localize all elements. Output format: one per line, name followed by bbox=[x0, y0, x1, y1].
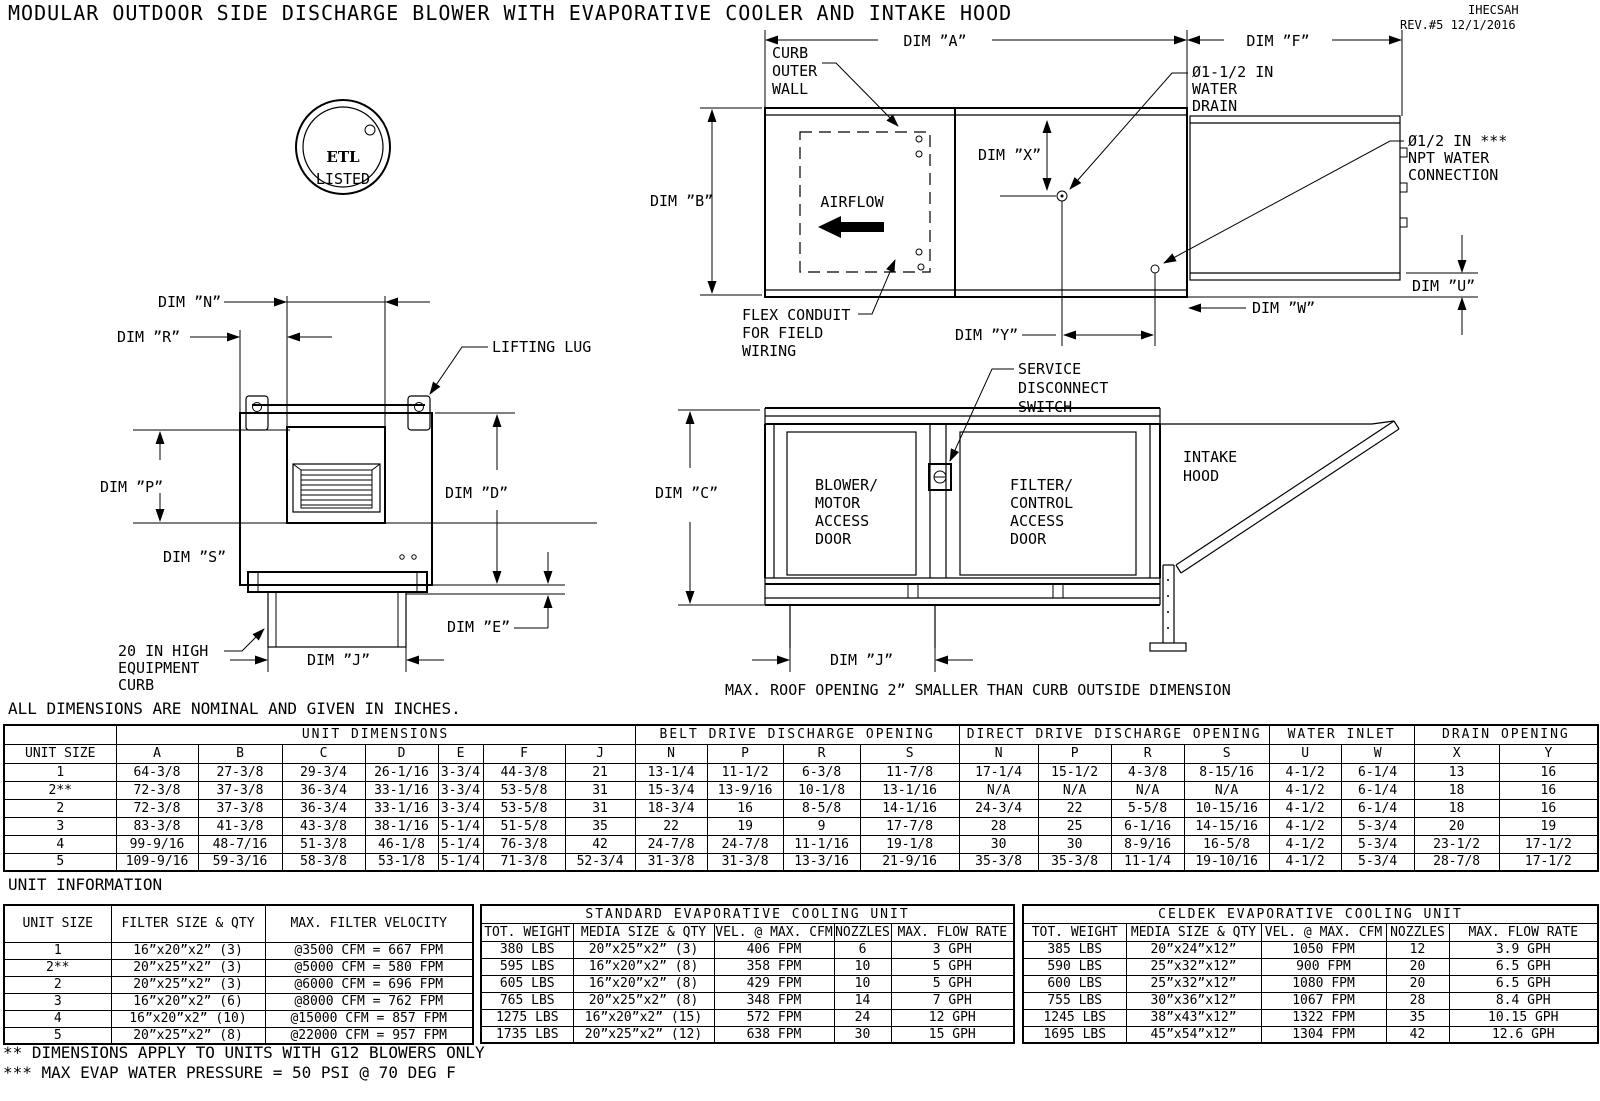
curb-outer-wall-label: OUTER bbox=[772, 62, 818, 80]
table-cell: 20”x25”x2” (8) bbox=[111, 1027, 265, 1044]
table-cell: 5-1/4 bbox=[438, 835, 483, 853]
column-header-row: UNIT SIZE FILTER SIZE & QTY MAX. FILTER … bbox=[4, 905, 473, 942]
table-cell: 7 GPH bbox=[891, 992, 1014, 1009]
table-cell: 590 LBS bbox=[1023, 958, 1126, 975]
dim-y-label: DIM ”Y” bbox=[955, 326, 1018, 344]
table-cell: 35-3/8 bbox=[959, 853, 1038, 871]
table-cell: 4-1/2 bbox=[1269, 853, 1341, 871]
table-cell: 6-1/4 bbox=[1341, 799, 1414, 817]
table-title-row: CELDEK EVAPORATIVE COOLING UNIT bbox=[1023, 905, 1598, 923]
table-row: 416”x20”x2” (10)@15000 CFM = 857 FPM bbox=[4, 1010, 473, 1027]
table-cell: 1275 LBS bbox=[481, 1009, 573, 1026]
flex-conduit-label: FOR FIELD bbox=[742, 324, 823, 342]
column-header-row: UNIT SIZE A B C D E F J N P R S N P R S … bbox=[4, 744, 1598, 763]
column-header: B bbox=[198, 744, 282, 763]
table-cell: 25”x32”x12” bbox=[1126, 958, 1261, 975]
table-cell: 16 bbox=[1499, 763, 1598, 781]
spec-sheet-page: MODULAR OUTDOOR SIDE DISCHARGE BLOWER WI… bbox=[0, 0, 1600, 1101]
filter-door-label: ACCESS bbox=[1010, 512, 1064, 530]
table-row: 316”x20”x2” (6)@8000 CFM = 762 FPM bbox=[4, 993, 473, 1010]
dim-r-label: DIM ”R” bbox=[117, 328, 180, 346]
water-drain-label: WATER bbox=[1192, 80, 1238, 98]
table-cell: 6-3/8 bbox=[783, 763, 860, 781]
table-cell: 2** bbox=[4, 781, 116, 799]
table-cell: 6-1/4 bbox=[1341, 781, 1414, 799]
table-cell: 109-9/16 bbox=[116, 853, 198, 871]
table-row: 1735 LBS20”x25”x2” (12)638 FPM3015 GPH bbox=[481, 1026, 1014, 1043]
table-cell: 44-3/8 bbox=[483, 763, 565, 781]
table-cell: 29-3/4 bbox=[282, 763, 365, 781]
table-cell: 26-1/16 bbox=[365, 763, 438, 781]
curb-outer-wall-label: CURB bbox=[772, 44, 808, 62]
table-cell: 24-7/8 bbox=[635, 835, 707, 853]
column-header: MAX. FLOW RATE bbox=[1449, 923, 1598, 941]
table-cell: 900 FPM bbox=[1261, 958, 1386, 975]
plan-view: DIM ”A” DIM ”F” DIM ”B” bbox=[650, 30, 1507, 360]
table-cell: 13-1/4 bbox=[635, 763, 707, 781]
table-cell: 23-1/2 bbox=[1414, 835, 1499, 853]
column-header: MAX. FLOW RATE bbox=[891, 923, 1014, 941]
column-header: F bbox=[483, 744, 565, 763]
column-header: FILTER SIZE & QTY bbox=[111, 905, 265, 942]
table-cell: 5 GPH bbox=[891, 958, 1014, 975]
etl-listed-text: LISTED bbox=[316, 170, 370, 188]
column-header: S bbox=[1184, 744, 1269, 763]
dim-n-label: DIM ”N” bbox=[158, 293, 221, 311]
table-cell: 20 bbox=[1386, 975, 1449, 992]
column-header: D bbox=[365, 744, 438, 763]
table-cell: 5-1/4 bbox=[438, 817, 483, 835]
table-cell: 4-1/2 bbox=[1269, 799, 1341, 817]
column-header: TOT. WEIGHT bbox=[1023, 923, 1126, 941]
column-header: A bbox=[116, 744, 198, 763]
table-cell: 6.5 GPH bbox=[1449, 975, 1598, 992]
table-cell: 6-1/4 bbox=[1341, 763, 1414, 781]
table-row: 380 LBS20”x25”x2” (3)406 FPM63 GPH bbox=[481, 941, 1014, 958]
airflow-arrow-icon bbox=[818, 216, 884, 238]
table-row: 499-9/1648-7/1651-3/846-1/85-1/476-3/842… bbox=[4, 835, 1598, 853]
table-cell: 15 GPH bbox=[891, 1026, 1014, 1043]
table-cell: 8-15/16 bbox=[1184, 763, 1269, 781]
group-drain-opening: DRAIN OPENING bbox=[1414, 725, 1598, 744]
table-cell: 24 bbox=[834, 1009, 891, 1026]
table-cell: 36-3/4 bbox=[282, 781, 365, 799]
table-cell: 11-1/2 bbox=[707, 763, 783, 781]
table-cell: 21-9/16 bbox=[860, 853, 959, 871]
column-header: C bbox=[282, 744, 365, 763]
table-cell: @3500 CFM = 667 FPM bbox=[265, 942, 473, 959]
table-cell: 20 bbox=[1386, 958, 1449, 975]
table-cell: 72-3/8 bbox=[116, 799, 198, 817]
unit-information-heading: UNIT INFORMATION bbox=[8, 875, 162, 894]
table-cell: @8000 CFM = 762 FPM bbox=[265, 993, 473, 1010]
table-cell: 41-3/8 bbox=[198, 817, 282, 835]
table-cell: 36-3/4 bbox=[282, 799, 365, 817]
group-unit-dimensions: UNIT DIMENSIONS bbox=[116, 725, 635, 744]
table-cell: 31-3/8 bbox=[635, 853, 707, 871]
table-row: 385 LBS20”x24”x12”1050 FPM123.9 GPH bbox=[1023, 941, 1598, 958]
table-row: 595 LBS16”x20”x2” (8)358 FPM105 GPH bbox=[481, 958, 1014, 975]
table-cell: 19-1/8 bbox=[860, 835, 959, 853]
table-cell: 12 bbox=[1386, 941, 1449, 958]
side-view: BLOWER/ MOTOR ACCESS DOOR FILTER/ CONTRO… bbox=[655, 360, 1399, 672]
table-cell: 59-3/16 bbox=[198, 853, 282, 871]
table-cell: 35-3/8 bbox=[1038, 853, 1111, 871]
table-cell: 30 bbox=[834, 1026, 891, 1043]
table-cell: N/A bbox=[1038, 781, 1111, 799]
etl-logo-text: ETL bbox=[326, 148, 360, 166]
water-drain-label: DRAIN bbox=[1192, 97, 1237, 115]
celdek-evap-title: CELDEK EVAPORATIVE COOLING UNIT bbox=[1023, 905, 1598, 923]
group-belt-drive: BELT DRIVE DISCHARGE OPENING bbox=[635, 725, 959, 744]
equipment-curb-label: 20 IN HIGH bbox=[118, 642, 208, 660]
table-cell: 20”x24”x12” bbox=[1126, 941, 1261, 958]
table-cell: 53-5/8 bbox=[483, 781, 565, 799]
flex-conduit-label: FLEX CONDUIT bbox=[742, 306, 850, 324]
table-cell: 765 LBS bbox=[481, 992, 573, 1009]
table-cell: 35 bbox=[565, 817, 635, 835]
table-cell: 10-15/16 bbox=[1184, 799, 1269, 817]
table-cell: 4-1/2 bbox=[1269, 835, 1341, 853]
table-cell: 1245 LBS bbox=[1023, 1009, 1126, 1026]
table-cell: 22 bbox=[1038, 799, 1111, 817]
table-row: 1245 LBS38”x43”x12”1322 FPM3510.15 GPH bbox=[1023, 1009, 1598, 1026]
table-cell: 31 bbox=[565, 781, 635, 799]
table-cell: 600 LBS bbox=[1023, 975, 1126, 992]
column-header: UNIT SIZE bbox=[4, 744, 116, 763]
group-water-inlet: WATER INLET bbox=[1269, 725, 1414, 744]
table-cell: 99-9/16 bbox=[116, 835, 198, 853]
table-cell: 4 bbox=[4, 835, 116, 853]
table-cell: 385 LBS bbox=[1023, 941, 1126, 958]
table-cell: 25”x32”x12” bbox=[1126, 975, 1261, 992]
table-cell: 19 bbox=[707, 817, 783, 835]
table-cell: 13-1/16 bbox=[860, 781, 959, 799]
table-cell: 51-3/8 bbox=[282, 835, 365, 853]
dim-s-label: DIM ”S” bbox=[163, 548, 226, 566]
table-row: 1695 LBS45”x54”x12”1304 FPM4212.6 GPH bbox=[1023, 1026, 1598, 1043]
table-cell: 10 bbox=[834, 958, 891, 975]
table-cell: 348 FPM bbox=[714, 992, 834, 1009]
table-cell: 31-3/8 bbox=[707, 853, 783, 871]
blower-door-label: BLOWER/ bbox=[815, 476, 878, 494]
table-cell: 3 bbox=[4, 993, 111, 1010]
table-cell: 5-3/4 bbox=[1341, 817, 1414, 835]
table-cell: 4-1/2 bbox=[1269, 763, 1341, 781]
column-header: TOT. WEIGHT bbox=[481, 923, 573, 941]
table-cell: 6-1/16 bbox=[1111, 817, 1184, 835]
table-cell: 406 FPM bbox=[714, 941, 834, 958]
table-cell: 8-5/8 bbox=[783, 799, 860, 817]
table-cell: 12.6 GPH bbox=[1449, 1026, 1598, 1043]
airflow-label: AIRFLOW bbox=[820, 193, 884, 211]
table-cell: 19-10/16 bbox=[1184, 853, 1269, 871]
table-cell: 5-3/4 bbox=[1341, 835, 1414, 853]
table-cell: 8-9/16 bbox=[1111, 835, 1184, 853]
table-cell: 38”x43”x12” bbox=[1126, 1009, 1261, 1026]
table-cell: 48-7/16 bbox=[198, 835, 282, 853]
table-cell: 5 bbox=[4, 853, 116, 871]
table-row: 765 LBS20”x25”x2” (8)348 FPM147 GPH bbox=[481, 992, 1014, 1009]
column-header: N bbox=[959, 744, 1038, 763]
table-cell: 18 bbox=[1414, 781, 1499, 799]
dim-j-front-label: DIM ”J” bbox=[307, 651, 370, 669]
table-cell: 64-3/8 bbox=[116, 763, 198, 781]
column-header: P bbox=[707, 744, 783, 763]
table-cell: 1304 FPM bbox=[1261, 1026, 1386, 1043]
column-header: P bbox=[1038, 744, 1111, 763]
table-cell: 5-3/4 bbox=[1341, 853, 1414, 871]
footnote-water-pressure: *** MAX EVAP WATER PRESSURE = 50 PSI @ 7… bbox=[3, 1063, 456, 1082]
water-drain-label: Ø1-1/2 IN bbox=[1192, 63, 1273, 81]
table-cell: 595 LBS bbox=[481, 958, 573, 975]
blower-door-label: MOTOR bbox=[815, 494, 861, 512]
filter-info-table: UNIT SIZE FILTER SIZE & QTY MAX. FILTER … bbox=[3, 904, 474, 1045]
table-cell: 24-7/8 bbox=[707, 835, 783, 853]
table-cell: 4-1/2 bbox=[1269, 817, 1341, 835]
dim-u-label: DIM ”U” bbox=[1412, 277, 1475, 295]
table-row: 116”x20”x2” (3)@3500 CFM = 667 FPM bbox=[4, 942, 473, 959]
table-cell: 13 bbox=[1414, 763, 1499, 781]
table-cell: N/A bbox=[1111, 781, 1184, 799]
table-cell: 51-5/8 bbox=[483, 817, 565, 835]
table-cell: 1695 LBS bbox=[1023, 1026, 1126, 1043]
table-cell: 42 bbox=[1386, 1026, 1449, 1043]
table-cell: 42 bbox=[565, 835, 635, 853]
table-cell: @15000 CFM = 857 FPM bbox=[265, 1010, 473, 1027]
table-row: 600 LBS25”x32”x12”1080 FPM206.5 GPH bbox=[1023, 975, 1598, 992]
table-cell: 25 bbox=[1038, 817, 1111, 835]
table-cell: 19 bbox=[1499, 817, 1598, 835]
column-header: R bbox=[1111, 744, 1184, 763]
table-cell: 16”x20”x2” (10) bbox=[111, 1010, 265, 1027]
table-cell: 31 bbox=[565, 799, 635, 817]
table-cell: 3-3/4 bbox=[438, 799, 483, 817]
table-cell: 14-15/16 bbox=[1184, 817, 1269, 835]
dim-x-label: DIM ”X” bbox=[978, 146, 1041, 164]
table-cell: 11-1/4 bbox=[1111, 853, 1184, 871]
equipment-curb-label: CURB bbox=[118, 676, 154, 694]
intake-hood-label: HOOD bbox=[1183, 467, 1219, 485]
table-cell: 76-3/8 bbox=[483, 835, 565, 853]
column-header-row: TOT. WEIGHT MEDIA SIZE & QTY VEL. @ MAX.… bbox=[481, 923, 1014, 941]
table-cell: 2 bbox=[4, 799, 116, 817]
table-cell: 380 LBS bbox=[481, 941, 573, 958]
table-cell: 11-7/8 bbox=[860, 763, 959, 781]
table-cell: @6000 CFM = 696 FPM bbox=[265, 976, 473, 993]
dim-b-label: DIM ”B” bbox=[650, 192, 713, 210]
table-cell: 46-1/8 bbox=[365, 835, 438, 853]
dim-c-label: DIM ”C” bbox=[655, 484, 718, 502]
table-cell: 17-7/8 bbox=[860, 817, 959, 835]
table-cell: 5-1/4 bbox=[438, 853, 483, 871]
table-cell: 20”x25”x2” (3) bbox=[111, 976, 265, 993]
column-header: R bbox=[783, 744, 860, 763]
table-cell: 28 bbox=[1386, 992, 1449, 1009]
front-view: DIM ”N” DIM ”R” LIFTING LUG DIM ”P” DIM … bbox=[100, 293, 597, 694]
dim-p-label: DIM ”P” bbox=[100, 478, 163, 496]
table-cell: 43-3/8 bbox=[282, 817, 365, 835]
dim-f-label: DIM ”F” bbox=[1246, 32, 1309, 50]
table-cell: 4-3/8 bbox=[1111, 763, 1184, 781]
column-header: VEL. @ MAX. CFM bbox=[1261, 923, 1386, 941]
table-cell: 9 bbox=[783, 817, 860, 835]
table-cell: 1322 FPM bbox=[1261, 1009, 1386, 1026]
table-cell: 2** bbox=[4, 959, 111, 976]
table-cell: 13-3/16 bbox=[783, 853, 860, 871]
group-header-row: UNIT DIMENSIONS BELT DRIVE DISCHARGE OPE… bbox=[4, 725, 1598, 744]
table-row: 2**72-3/837-3/836-3/433-1/163-3/453-5/83… bbox=[4, 781, 1598, 799]
table-cell: 16 bbox=[1499, 799, 1598, 817]
table-cell: 20”x25”x2” (3) bbox=[111, 959, 265, 976]
column-header: UNIT SIZE bbox=[4, 905, 111, 942]
table-cell: 358 FPM bbox=[714, 958, 834, 975]
column-header-row: TOT. WEIGHT MEDIA SIZE & QTY VEL. @ MAX.… bbox=[1023, 923, 1598, 941]
table-row: 383-3/841-3/843-3/838-1/165-1/451-5/8352… bbox=[4, 817, 1598, 835]
table-cell: N/A bbox=[959, 781, 1038, 799]
table-cell: 15-1/2 bbox=[1038, 763, 1111, 781]
dim-w-label: DIM ”W” bbox=[1252, 299, 1315, 317]
blower-door-label: ACCESS bbox=[815, 512, 869, 530]
column-header: E bbox=[438, 744, 483, 763]
table-cell: 4 bbox=[4, 1010, 111, 1027]
table-cell: 572 FPM bbox=[714, 1009, 834, 1026]
table-cell: 1050 FPM bbox=[1261, 941, 1386, 958]
table-cell: 8.4 GPH bbox=[1449, 992, 1598, 1009]
table-cell: 5 GPH bbox=[891, 975, 1014, 992]
table-cell: 3-3/4 bbox=[438, 763, 483, 781]
table-cell: 2 bbox=[4, 976, 111, 993]
blower-door-label: DOOR bbox=[815, 530, 852, 548]
table-row: 1275 LBS16”x20”x2” (15)572 FPM2412 GPH bbox=[481, 1009, 1014, 1026]
table-cell: 1 bbox=[4, 763, 116, 781]
corner-cell bbox=[4, 725, 116, 744]
dim-j-side-label: DIM ”J” bbox=[830, 651, 893, 669]
etl-listed-logo: ETL LISTED bbox=[296, 100, 390, 194]
filter-door-label: FILTER/ bbox=[1010, 476, 1073, 494]
table-cell: 16”x20”x2” (15) bbox=[573, 1009, 714, 1026]
column-header: NOZZLES bbox=[834, 923, 891, 941]
table-cell: 33-1/16 bbox=[365, 781, 438, 799]
table-cell: 6 bbox=[834, 941, 891, 958]
table-cell: 5-5/8 bbox=[1111, 799, 1184, 817]
table-cell: 52-3/4 bbox=[565, 853, 635, 871]
table-cell: 30 bbox=[1038, 835, 1111, 853]
filter-door-label: CONTROL bbox=[1010, 494, 1073, 512]
table-row: 164-3/827-3/829-3/426-1/163-3/444-3/8211… bbox=[4, 763, 1598, 781]
table-cell: 17-1/4 bbox=[959, 763, 1038, 781]
table-cell: 45”x54”x12” bbox=[1126, 1026, 1261, 1043]
filter-door-label: DOOR bbox=[1010, 530, 1047, 548]
column-header: X bbox=[1414, 744, 1499, 763]
column-header: Y bbox=[1499, 744, 1598, 763]
table-cell: N/A bbox=[1184, 781, 1269, 799]
standard-evap-title: STANDARD EVAPORATIVE COOLING UNIT bbox=[481, 905, 1014, 923]
table-cell: 20”x25”x2” (8) bbox=[573, 992, 714, 1009]
table-cell: 20”x25”x2” (3) bbox=[573, 941, 714, 958]
service-switch-label: SERVICE bbox=[1018, 360, 1081, 378]
table-cell: 11-1/16 bbox=[783, 835, 860, 853]
dim-e-label: DIM ”E” bbox=[447, 618, 510, 636]
table-cell: 20”x25”x2” (12) bbox=[573, 1026, 714, 1043]
service-switch-label: DISCONNECT bbox=[1018, 379, 1108, 397]
dim-d-label: DIM ”D” bbox=[445, 484, 508, 502]
table-cell: 30”x36”x12” bbox=[1126, 992, 1261, 1009]
table-cell: 5 bbox=[4, 1027, 111, 1044]
table-cell: 638 FPM bbox=[714, 1026, 834, 1043]
table-cell: 1067 FPM bbox=[1261, 992, 1386, 1009]
table-cell: 21 bbox=[565, 763, 635, 781]
table-cell: 37-3/8 bbox=[198, 781, 282, 799]
npt-water-label: NPT WATER bbox=[1408, 149, 1490, 167]
table-cell: 38-1/16 bbox=[365, 817, 438, 835]
column-header: S bbox=[860, 744, 959, 763]
table-cell: @5000 CFM = 580 FPM bbox=[265, 959, 473, 976]
column-header: J bbox=[565, 744, 635, 763]
table-row: 755 LBS30”x36”x12”1067 FPM288.4 GPH bbox=[1023, 992, 1598, 1009]
table-cell: 13-9/16 bbox=[707, 781, 783, 799]
dimensions-table: UNIT DIMENSIONS BELT DRIVE DISCHARGE OPE… bbox=[3, 724, 1599, 872]
table-cell: 30 bbox=[959, 835, 1038, 853]
column-header: MAX. FILTER VELOCITY bbox=[265, 905, 473, 942]
table-row: 2**20”x25”x2” (3)@5000 CFM = 580 FPM bbox=[4, 959, 473, 976]
column-header: MEDIA SIZE & QTY bbox=[573, 923, 714, 941]
table-cell: 71-3/8 bbox=[483, 853, 565, 871]
table-cell: 18-3/4 bbox=[635, 799, 707, 817]
table-cell: 429 FPM bbox=[714, 975, 834, 992]
dimensions-note: ALL DIMENSIONS ARE NOMINAL AND GIVEN IN … bbox=[8, 699, 461, 718]
table-cell: 16”x20”x2” (3) bbox=[111, 942, 265, 959]
table-cell: 10 bbox=[834, 975, 891, 992]
table-cell: 17-1/2 bbox=[1499, 853, 1598, 871]
equipment-curb-label: EQUIPMENT bbox=[118, 659, 199, 677]
standard-evap-table: STANDARD EVAPORATIVE COOLING UNIT TOT. W… bbox=[480, 904, 1015, 1044]
table-cell: 83-3/8 bbox=[116, 817, 198, 835]
table-cell: 16-5/8 bbox=[1184, 835, 1269, 853]
column-header: N bbox=[635, 744, 707, 763]
table-cell: 53-5/8 bbox=[483, 799, 565, 817]
table-cell: 14-1/16 bbox=[860, 799, 959, 817]
table-cell: 16”x20”x2” (6) bbox=[111, 993, 265, 1010]
table-cell: 17-1/2 bbox=[1499, 835, 1598, 853]
table-cell: 14 bbox=[834, 992, 891, 1009]
table-cell: 22 bbox=[635, 817, 707, 835]
flex-conduit-label: WIRING bbox=[742, 342, 796, 360]
lifting-lug-label: LIFTING LUG bbox=[492, 338, 591, 356]
footnote-g12: ** DIMENSIONS APPLY TO UNITS WITH G12 BL… bbox=[3, 1043, 485, 1062]
table-cell: 1 bbox=[4, 942, 111, 959]
table-row: 605 LBS16”x20”x2” (8)429 FPM105 GPH bbox=[481, 975, 1014, 992]
table-cell: 12 GPH bbox=[891, 1009, 1014, 1026]
table-cell: 16”x20”x2” (8) bbox=[573, 975, 714, 992]
table-cell: 6.5 GPH bbox=[1449, 958, 1598, 975]
table-cell: 15-3/4 bbox=[635, 781, 707, 799]
table-row: 590 LBS25”x32”x12”900 FPM206.5 GPH bbox=[1023, 958, 1598, 975]
npt-water-label: CONNECTION bbox=[1408, 166, 1498, 184]
curb-outer-wall-label: WALL bbox=[772, 80, 808, 98]
table-cell: 3 bbox=[4, 817, 116, 835]
roof-opening-note: MAX. ROOF OPENING 2” SMALLER THAN CURB O… bbox=[725, 681, 1231, 699]
table-cell: 605 LBS bbox=[481, 975, 573, 992]
technical-drawing: ETL LISTED DIM ”A” DIM ”F” bbox=[0, 0, 1600, 700]
dim-a-label: DIM ”A” bbox=[903, 32, 966, 50]
column-header: W bbox=[1341, 744, 1414, 763]
table-cell: 35 bbox=[1386, 1009, 1449, 1026]
table-cell: 28-7/8 bbox=[1414, 853, 1499, 871]
table-row: 520”x25”x2” (8)@22000 CFM = 957 FPM bbox=[4, 1027, 473, 1044]
table-cell: 4-1/2 bbox=[1269, 781, 1341, 799]
column-header: NOZZLES bbox=[1386, 923, 1449, 941]
